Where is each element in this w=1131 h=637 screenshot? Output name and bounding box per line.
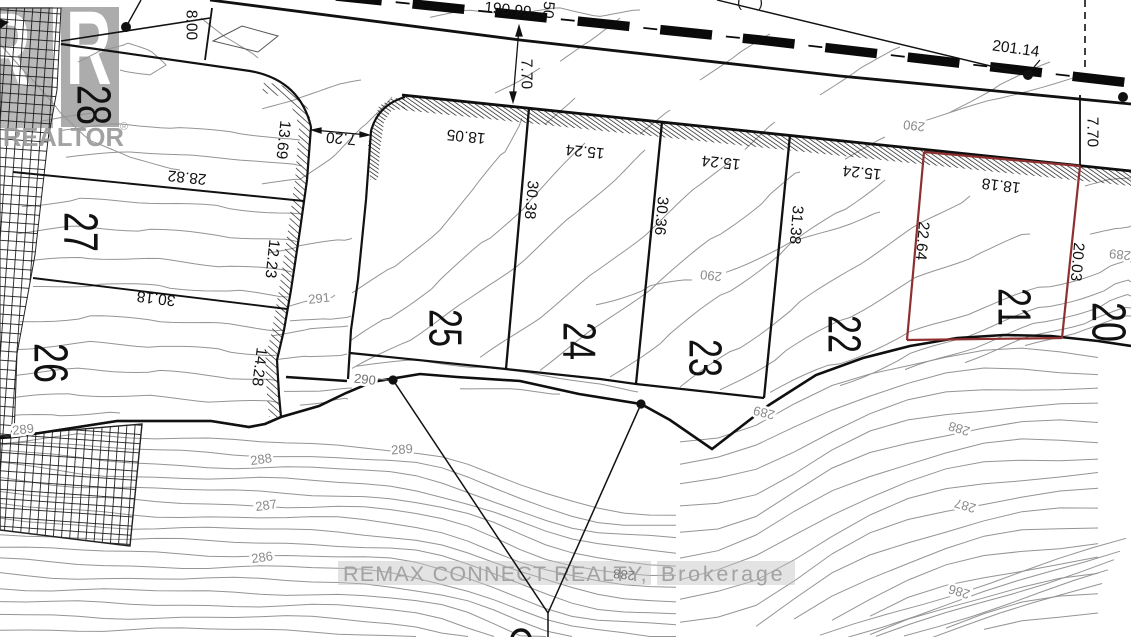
svg-text:26: 26 [24,343,77,383]
svg-text:®: ® [120,121,128,133]
svg-text:31.38: 31.38 [786,205,806,245]
svg-text:22: 22 [818,315,870,353]
svg-text:30.36: 30.36 [651,196,671,236]
svg-text:21: 21 [988,288,1040,326]
svg-text:50: 50 [539,0,558,19]
svg-text:288: 288 [249,450,273,468]
svg-text:7.70: 7.70 [517,59,534,90]
svg-text:30.38: 30.38 [521,180,541,220]
svg-text:20: 20 [1082,302,1131,342]
svg-text:289: 289 [391,441,414,457]
svg-text:): ) [758,0,763,11]
svg-text:25: 25 [419,309,471,347]
svg-text:8.00: 8.00 [182,10,199,41]
svg-text:290: 290 [353,371,376,388]
svg-text:286: 286 [250,548,274,566]
svg-text:287: 287 [254,496,278,514]
svg-text:REMAX CONNECT REALTY,: REMAX CONNECT REALTY, [343,562,648,586]
svg-text:290: 290 [699,267,722,284]
svg-text:289: 289 [1108,246,1131,263]
svg-text:291: 291 [307,290,330,307]
svg-text:28: 28 [67,85,120,125]
svg-text:7.70: 7.70 [1083,117,1100,148]
svg-text:288: 288 [612,566,635,583]
svg-text:20.03: 20.03 [1067,242,1087,282]
svg-text:290: 290 [902,117,925,135]
svg-text:23: 23 [679,339,731,377]
svg-text:24: 24 [553,322,605,360]
svg-text:Brokerage: Brokerage [661,562,785,586]
svg-text:289: 289 [11,421,34,438]
svg-text:(: ( [737,0,742,11]
svg-text:7.20: 7.20 [325,128,357,148]
svg-text:22.64: 22.64 [912,221,932,262]
svg-text:27: 27 [54,212,107,252]
svg-text:REALTOR: REALTOR [3,124,124,152]
